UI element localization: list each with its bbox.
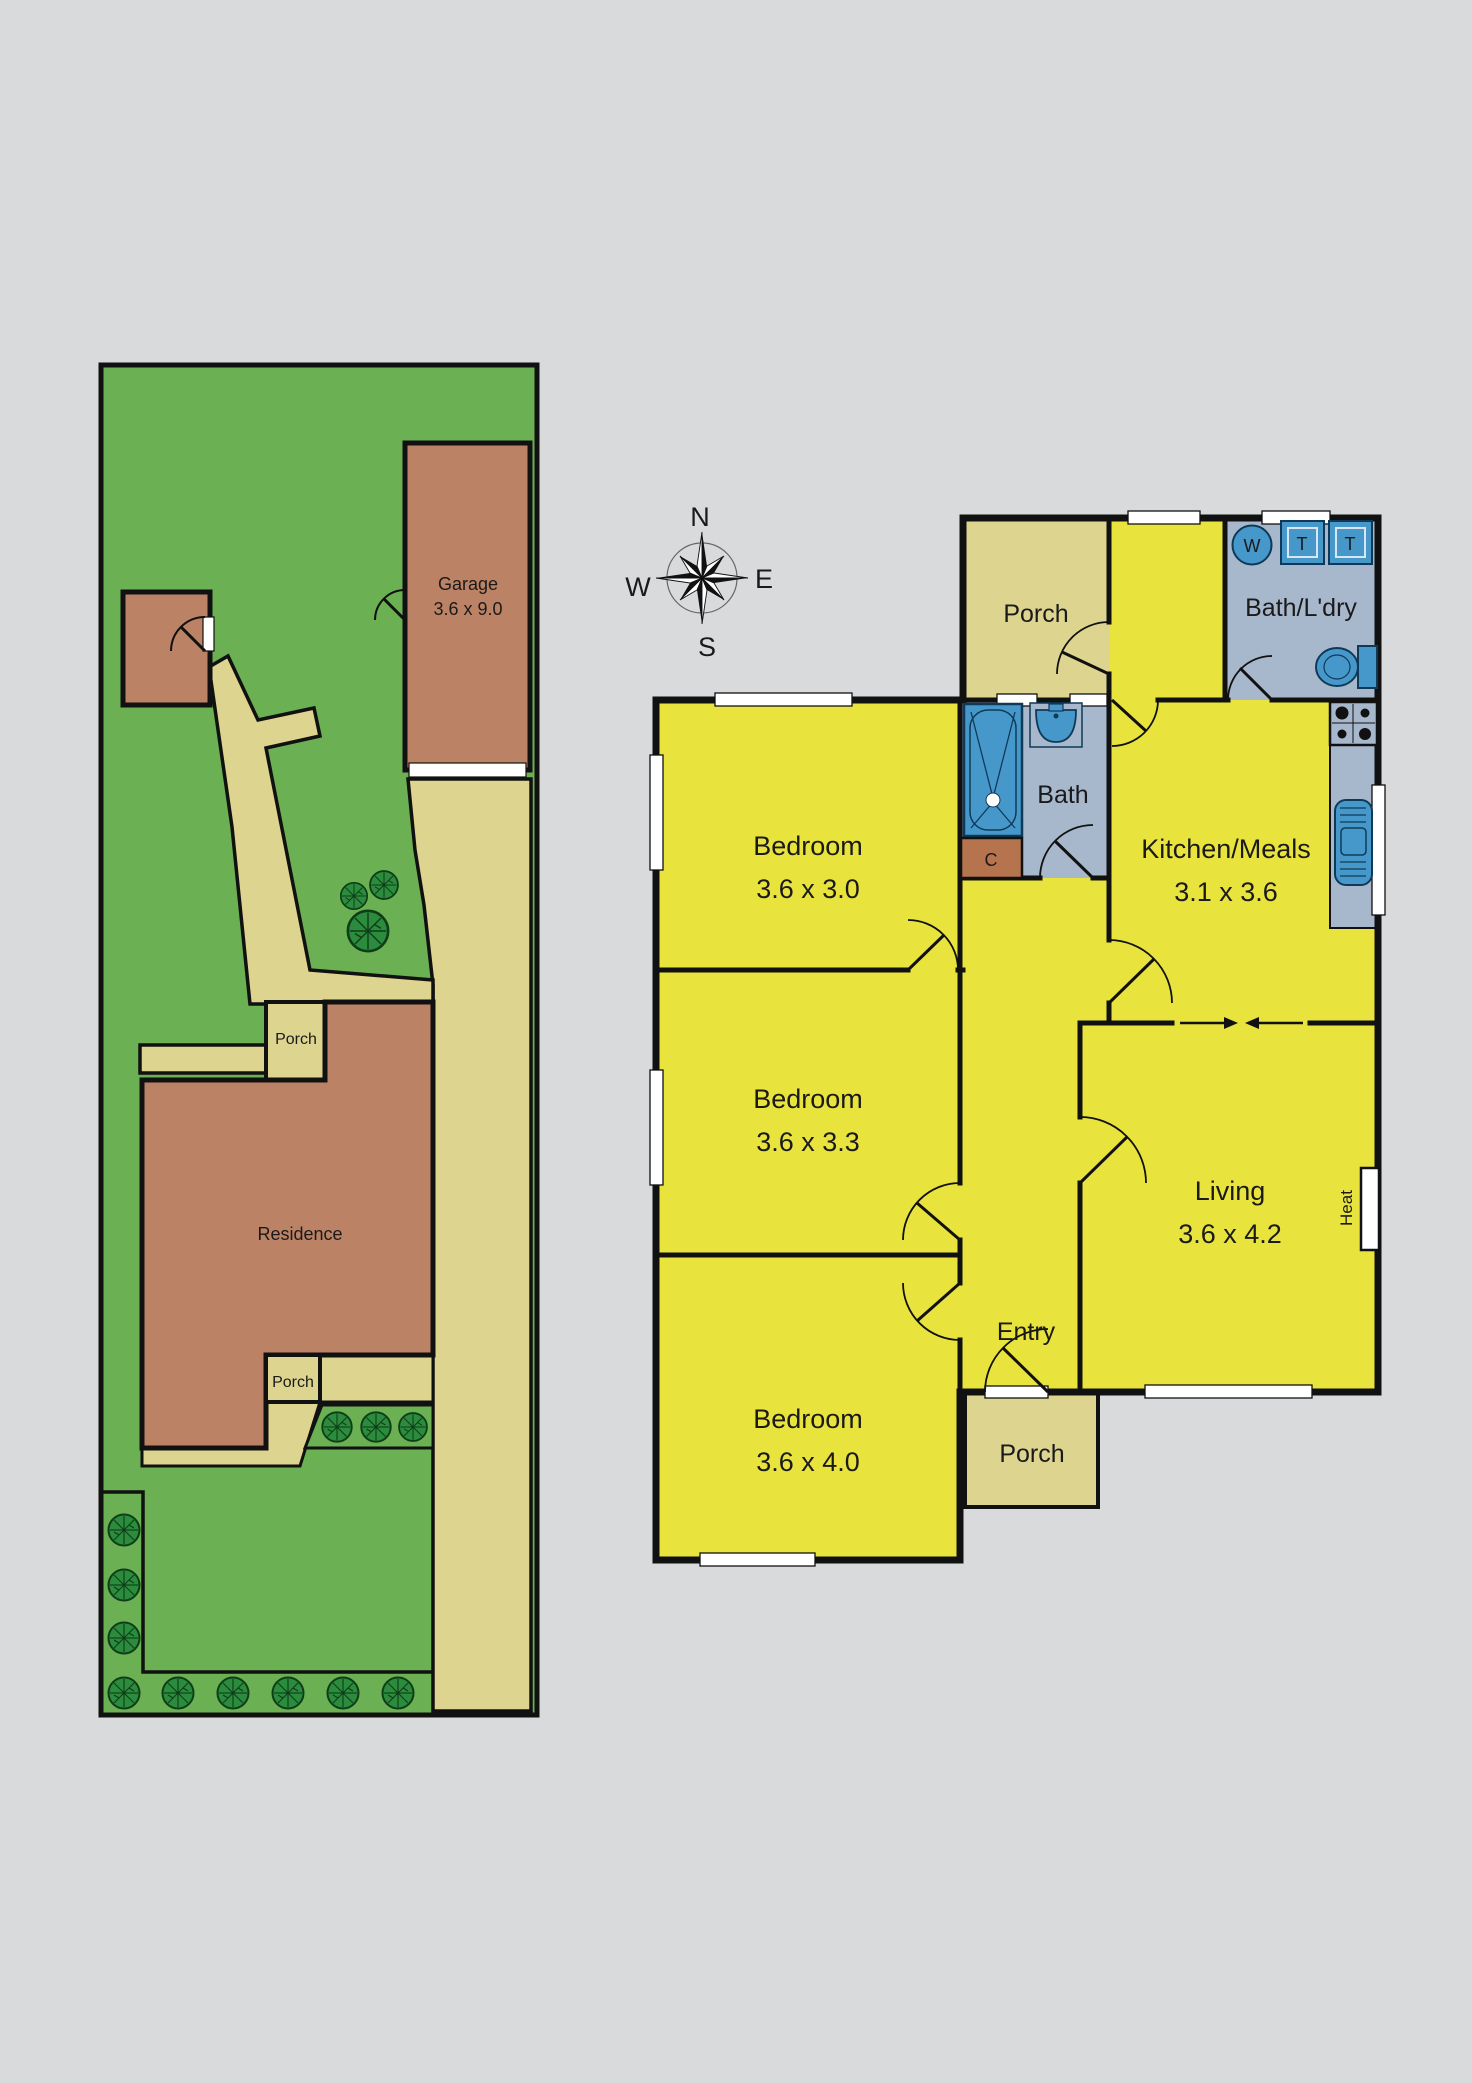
bathtub-icon bbox=[964, 704, 1022, 836]
window-kitchen-east bbox=[1372, 785, 1385, 915]
tree-icon bbox=[218, 1678, 249, 1709]
compass-west-label: W bbox=[625, 572, 651, 602]
bedroom3-label: Bedroom bbox=[753, 1404, 863, 1434]
site-porch-upper-label: Porch bbox=[275, 1031, 317, 1048]
bath-laundry-label: Bath/L'dry bbox=[1245, 594, 1357, 622]
porch-top-label: Porch bbox=[1003, 600, 1068, 628]
kitchen-dims: 3.1 x 3.6 bbox=[1174, 877, 1278, 907]
bath-basin-icon bbox=[1030, 703, 1082, 747]
compass-rose: N E S W bbox=[625, 502, 773, 662]
tree-icon bbox=[163, 1678, 194, 1709]
heater-label: Heat bbox=[1337, 1190, 1356, 1226]
residence-label: Residence bbox=[257, 1224, 342, 1244]
tree-icon bbox=[328, 1678, 359, 1709]
window-bedroom3-south bbox=[700, 1553, 815, 1566]
side-walkway bbox=[140, 1045, 266, 1073]
shed-door bbox=[203, 617, 214, 651]
garage-dims: 3.6 x 9.0 bbox=[433, 599, 502, 619]
window-bedroom1-north bbox=[715, 693, 852, 706]
bedroom1-label: Bedroom bbox=[753, 831, 863, 861]
porch-bottom-label: Porch bbox=[999, 1440, 1064, 1468]
heater-unit bbox=[1361, 1168, 1379, 1250]
site-plan: Garage 3.6 x 9.0 Porch Residence Porch bbox=[101, 365, 537, 1715]
entry-label: Entry bbox=[997, 1318, 1056, 1346]
floorplan-page: Garage 3.6 x 9.0 Porch Residence Porch bbox=[0, 0, 1472, 2083]
tree-icon bbox=[109, 1678, 140, 1709]
tree-icon bbox=[109, 1623, 140, 1654]
tree-icon bbox=[341, 883, 367, 909]
tree-icon bbox=[109, 1515, 140, 1546]
tree-icon bbox=[348, 911, 388, 951]
bedroom3-dims: 3.6 x 4.0 bbox=[756, 1447, 860, 1477]
bedroom1-dims: 3.6 x 3.0 bbox=[756, 874, 860, 904]
window-bedroom1-west bbox=[650, 755, 663, 870]
shed bbox=[123, 592, 210, 705]
tree-icon bbox=[361, 1412, 390, 1441]
tree-icon bbox=[322, 1412, 351, 1441]
tree-icon bbox=[399, 1413, 427, 1441]
garage-label: Garage bbox=[438, 574, 498, 594]
washer-label: W bbox=[1244, 536, 1261, 556]
site-porch-lower-label: Porch bbox=[272, 1374, 314, 1391]
toilet-icon bbox=[1316, 646, 1377, 688]
bath-label: Bath bbox=[1037, 781, 1088, 809]
living-dims: 3.6 x 4.2 bbox=[1178, 1219, 1282, 1249]
compass-south-label: S bbox=[698, 632, 716, 662]
living-label: Living bbox=[1195, 1176, 1266, 1206]
tree-icon bbox=[370, 871, 398, 899]
tree-icon bbox=[383, 1678, 414, 1709]
compass-east-label: E bbox=[755, 564, 773, 594]
trough2-label: T bbox=[1345, 534, 1356, 554]
bedroom2-dims: 3.6 x 3.3 bbox=[756, 1127, 860, 1157]
kitchen-sink-icon bbox=[1335, 800, 1372, 885]
floorplan-drawing: Garage 3.6 x 9.0 Porch Residence Porch bbox=[0, 0, 1472, 2083]
tree-icon bbox=[273, 1678, 304, 1709]
front-door-threshold bbox=[985, 1386, 1048, 1398]
cupboard-label: C bbox=[985, 850, 998, 870]
window-kitchen-north bbox=[1128, 511, 1200, 524]
bedroom2-label: Bedroom bbox=[753, 1084, 863, 1114]
window-bedroom2-west bbox=[650, 1070, 663, 1185]
tree-icon bbox=[109, 1570, 140, 1601]
trough1-label: T bbox=[1297, 534, 1308, 554]
stove-icon bbox=[1330, 702, 1377, 745]
window-living-south bbox=[1145, 1385, 1312, 1398]
floor-plan: C W T T bbox=[650, 511, 1385, 1566]
porch-walkway bbox=[320, 1355, 433, 1402]
compass-north-label: N bbox=[690, 502, 710, 532]
compass-star-icon bbox=[656, 532, 748, 624]
garage-roller-door bbox=[409, 763, 526, 777]
kitchen-label: Kitchen/Meals bbox=[1141, 834, 1311, 864]
